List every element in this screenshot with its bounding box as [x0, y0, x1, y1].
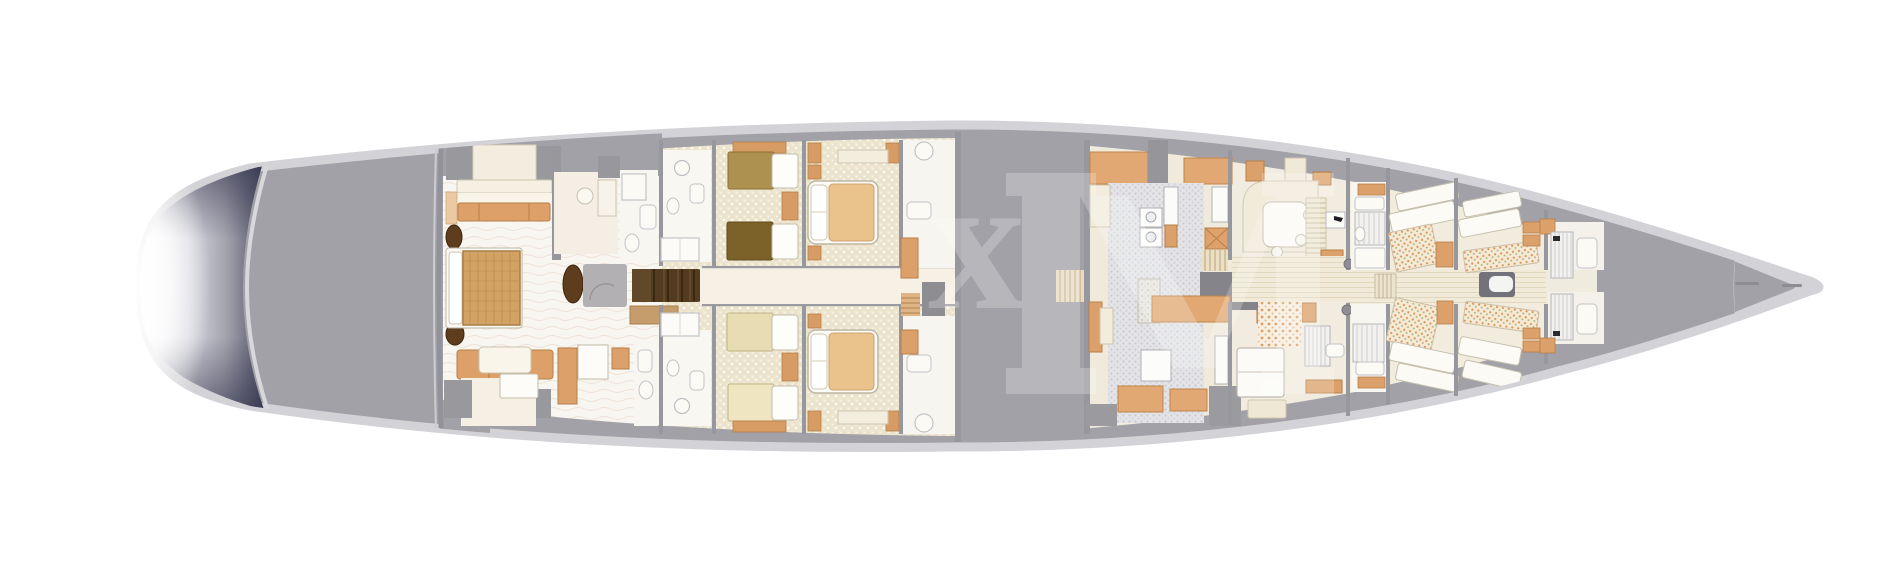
svg-text:x: x	[928, 135, 1026, 351]
